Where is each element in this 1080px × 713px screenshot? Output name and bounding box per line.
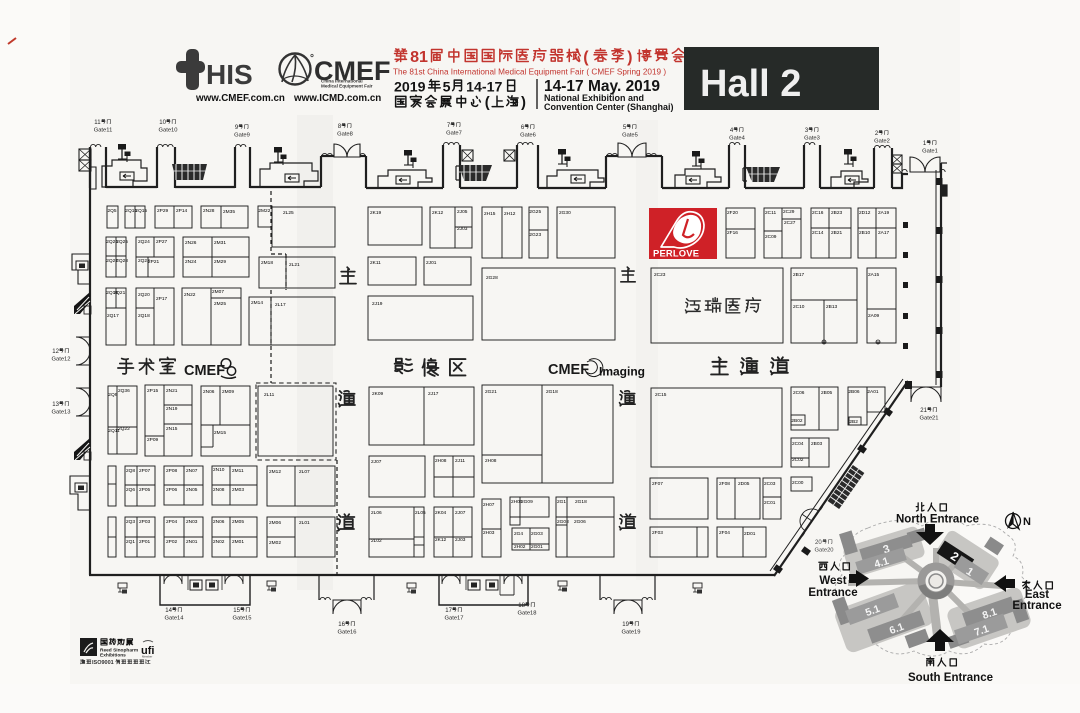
svg-text:2L21: 2L21 <box>289 262 300 268</box>
svg-text:www.CMEF.com.cn: www.CMEF.com.cn <box>195 93 285 104</box>
svg-text:2K09: 2K09 <box>372 391 384 397</box>
svg-text:2P06: 2P06 <box>166 487 178 493</box>
svg-text:2J03: 2J03 <box>455 537 466 543</box>
svg-text:2M29: 2M29 <box>214 259 226 265</box>
svg-text:Gate15: Gate15 <box>232 616 251 622</box>
svg-text:2N15: 2N15 <box>166 426 178 432</box>
svg-text:Entrance: Entrance <box>808 587 857 599</box>
svg-text:2D01: 2D01 <box>744 531 756 537</box>
svg-text:Gate10: Gate10 <box>158 128 177 134</box>
svg-text:2Q3: 2Q3 <box>126 519 135 525</box>
svg-text:(: ( <box>583 48 589 66</box>
svg-text:2C06: 2C06 <box>793 390 805 396</box>
svg-text:14-17: 14-17 <box>466 79 502 95</box>
svg-text:2P09: 2P09 <box>147 437 159 443</box>
svg-text:5: 5 <box>443 79 451 95</box>
svg-text:2G25: 2G25 <box>529 209 541 215</box>
svg-text:14: 14 <box>165 608 172 614</box>
svg-text:2G23: 2G23 <box>529 232 541 238</box>
svg-text:2G1: 2G1 <box>557 499 566 505</box>
svg-text:2N19: 2N19 <box>166 406 178 412</box>
svg-text:Gate17: Gate17 <box>444 616 463 622</box>
svg-text:2P14: 2P14 <box>176 208 188 214</box>
svg-text:12: 12 <box>52 349 59 355</box>
svg-text:2L17: 2L17 <box>275 302 286 308</box>
svg-text:2N07: 2N07 <box>186 468 198 474</box>
svg-text:2P07: 2P07 <box>139 468 151 474</box>
svg-text:2F16: 2F16 <box>727 230 738 236</box>
svg-text:2P08: 2P08 <box>166 468 178 474</box>
svg-text:2N01: 2N01 <box>186 539 198 545</box>
svg-text:2N05: 2N05 <box>186 487 198 493</box>
svg-text:2L05: 2L05 <box>415 510 426 516</box>
svg-text:2B03: 2B03 <box>811 441 823 447</box>
svg-text:2M31: 2M31 <box>214 240 226 246</box>
svg-text:2K04: 2K04 <box>435 510 447 516</box>
svg-text:2B05: 2B05 <box>821 390 833 396</box>
svg-text:2J11: 2J11 <box>455 458 465 464</box>
svg-text:2G09: 2G09 <box>521 499 533 505</box>
svg-text:Gate16: Gate16 <box>337 630 356 636</box>
svg-text:2G18: 2G18 <box>575 499 587 505</box>
svg-text:2B10: 2B10 <box>859 230 871 236</box>
svg-text:2Q24: 2Q24 <box>138 239 150 245</box>
svg-text:2D12: 2D12 <box>859 210 871 216</box>
svg-text:ISO9001: ISO9001 <box>92 660 114 666</box>
svg-text:2J07: 2J07 <box>455 510 466 516</box>
svg-text:2J05: 2J05 <box>457 209 468 215</box>
svg-text:2G03: 2G03 <box>531 531 543 537</box>
svg-text:2N06: 2N06 <box>213 519 225 525</box>
svg-text:2M35: 2M35 <box>223 209 235 215</box>
svg-text:2M14: 2M14 <box>251 300 263 306</box>
svg-text:2Q15: 2Q15 <box>135 208 147 214</box>
svg-text:2G28: 2G28 <box>486 275 498 281</box>
svg-text:2P02: 2P02 <box>166 539 178 545</box>
svg-text:2C01: 2C01 <box>764 500 776 506</box>
svg-text:2M01: 2M01 <box>232 539 244 545</box>
svg-text:2P05: 2P05 <box>139 487 151 493</box>
svg-text:2H02: 2H02 <box>514 544 526 550</box>
svg-text:(: ( <box>485 95 490 111</box>
svg-text:2B02: 2B02 <box>791 418 803 424</box>
svg-text:2M02: 2M02 <box>269 540 281 546</box>
svg-text:2L07: 2L07 <box>299 469 310 475</box>
svg-text:2M07: 2M07 <box>212 289 224 295</box>
svg-text:CMEF: CMEF <box>184 363 225 379</box>
svg-text:2N03: 2N03 <box>186 519 198 525</box>
svg-text:2L06: 2L06 <box>371 510 382 516</box>
svg-text:2Q25: 2Q25 <box>116 239 128 245</box>
svg-text:2C15: 2C15 <box>655 392 667 398</box>
svg-text:2C11: 2C11 <box>765 210 776 216</box>
svg-text:The 81st China International M: The 81st China International Medical Equ… <box>393 68 666 77</box>
svg-text:Gate21: Gate21 <box>919 416 938 422</box>
svg-text:2H12: 2H12 <box>504 211 516 217</box>
svg-text:2Q18: 2Q18 <box>138 313 150 319</box>
svg-text:2Q9: 2Q9 <box>108 392 117 398</box>
svg-text:2Q28: 2Q28 <box>116 258 128 264</box>
svg-text:2Q5: 2Q5 <box>108 208 117 214</box>
svg-text:2Q17: 2Q17 <box>107 313 119 319</box>
svg-text:): ) <box>627 48 632 66</box>
svg-text:2J19: 2J19 <box>372 301 383 307</box>
svg-text:Gate5: Gate5 <box>622 133 638 139</box>
svg-text:2M06: 2M06 <box>269 520 281 526</box>
svg-text:2P04: 2P04 <box>166 519 178 525</box>
svg-text:18: 18 <box>518 603 525 609</box>
svg-text:2N08: 2N08 <box>213 487 225 493</box>
svg-text:2B2: 2B2 <box>849 419 858 425</box>
svg-text:2P01: 2P01 <box>139 539 151 545</box>
svg-text:2P29: 2P29 <box>157 208 169 214</box>
svg-text:Gate2: Gate2 <box>874 139 890 145</box>
svg-text:2C10: 2C10 <box>793 304 805 310</box>
svg-text:2L25: 2L25 <box>283 210 294 216</box>
svg-text:2H15: 2H15 <box>484 211 496 217</box>
svg-text:13: 13 <box>52 402 59 408</box>
svg-text:Gate1: Gate1 <box>922 149 938 155</box>
svg-text:Gate6: Gate6 <box>520 133 536 139</box>
svg-text:Member: Member <box>142 655 152 659</box>
svg-text:2A01: 2A01 <box>867 389 879 395</box>
svg-text:81: 81 <box>410 48 428 66</box>
svg-text:20: 20 <box>815 540 822 546</box>
svg-text:2019: 2019 <box>394 79 426 95</box>
svg-text:Medical Equipment Fair: Medical Equipment Fair <box>321 84 373 89</box>
svg-text:2N02: 2N02 <box>213 539 225 545</box>
svg-text:2M15: 2M15 <box>214 430 226 436</box>
svg-text:Gate19: Gate19 <box>621 630 640 636</box>
svg-text:2H03: 2H03 <box>483 530 495 536</box>
svg-text:North Entrance: North Entrance <box>896 514 979 526</box>
svg-text:2N22: 2N22 <box>184 292 196 298</box>
svg-text:Gate14: Gate14 <box>164 616 184 622</box>
svg-text:Imaging: Imaging <box>599 365 645 379</box>
svg-text:17: 17 <box>445 608 452 614</box>
svg-text:2M09: 2M09 <box>222 389 234 395</box>
svg-text:N: N <box>1023 516 1031 528</box>
svg-text:2M03: 2M03 <box>232 487 244 493</box>
svg-text:2F07: 2F07 <box>652 481 663 487</box>
svg-text:2A09: 2A09 <box>868 313 880 319</box>
svg-text:2K19: 2K19 <box>370 210 382 216</box>
svg-text:2J07: 2J07 <box>371 459 382 465</box>
svg-text:2C03: 2C03 <box>764 481 776 487</box>
svg-text:2C29: 2C29 <box>783 209 795 215</box>
svg-text:Entrance: Entrance <box>1012 600 1061 612</box>
svg-text:2G06: 2G06 <box>574 519 586 525</box>
svg-text:2K12: 2K12 <box>435 537 447 543</box>
svg-text:2F20: 2F20 <box>727 210 738 216</box>
svg-text:2Q20: 2Q20 <box>138 292 150 298</box>
svg-text:2M22: 2M22 <box>258 208 270 214</box>
svg-text:2D05: 2D05 <box>738 481 750 487</box>
svg-text:2M05: 2M05 <box>232 519 244 525</box>
svg-text:2C00: 2C00 <box>792 480 804 486</box>
svg-text:Gate7: Gate7 <box>446 131 462 137</box>
svg-text:2M12: 2M12 <box>269 469 281 475</box>
svg-text:16: 16 <box>338 622 345 628</box>
svg-text:2N21: 2N21 <box>166 388 178 394</box>
svg-text:2N24: 2N24 <box>185 259 197 265</box>
svg-text:2P17: 2P17 <box>156 296 168 302</box>
svg-text:www.ICMD.com.cn: www.ICMD.com.cn <box>293 93 381 104</box>
svg-text:2P27: 2P27 <box>156 239 168 245</box>
svg-text:Gate13: Gate13 <box>51 410 70 416</box>
svg-text:2L11: 2L11 <box>264 392 275 398</box>
svg-text:CMEF: CMEF <box>548 362 589 378</box>
svg-text:21: 21 <box>920 408 927 414</box>
svg-text:2G01: 2G01 <box>531 544 543 550</box>
svg-text:Gate8: Gate8 <box>337 132 353 138</box>
svg-text:15: 15 <box>233 608 240 614</box>
svg-text:10: 10 <box>159 120 166 126</box>
svg-text:2J01: 2J01 <box>426 260 437 266</box>
svg-text:Gate4: Gate4 <box>729 136 746 142</box>
svg-text:2Q8: 2Q8 <box>126 468 135 474</box>
svg-text:2P15: 2P15 <box>147 388 159 394</box>
svg-text:2H08: 2H08 <box>485 458 497 464</box>
svg-text:2F08: 2F08 <box>719 481 730 487</box>
svg-text:2B06: 2B06 <box>848 389 860 395</box>
svg-text:2M18: 2M18 <box>261 260 273 266</box>
svg-text:2G4: 2G4 <box>514 531 523 537</box>
svg-text:2L01: 2L01 <box>299 520 310 526</box>
svg-text:2C14: 2C14 <box>812 230 824 236</box>
svg-text:2P03: 2P03 <box>139 519 151 525</box>
svg-text:2Q1: 2Q1 <box>126 539 135 545</box>
svg-text:2C27: 2C27 <box>784 220 796 226</box>
svg-text:Gate9: Gate9 <box>234 133 250 139</box>
svg-text:2K11: 2K11 <box>370 260 381 266</box>
svg-text:2N10: 2N10 <box>213 467 225 473</box>
svg-text:HIS: HIS <box>206 59 253 90</box>
svg-text:2A19: 2A19 <box>878 210 890 216</box>
svg-text:2B21: 2B21 <box>831 230 843 236</box>
svg-text:2F04: 2F04 <box>719 530 730 536</box>
svg-text:2F03: 2F03 <box>652 530 663 536</box>
svg-text:Gate3: Gate3 <box>804 136 820 142</box>
svg-text:2C09: 2C09 <box>765 234 777 240</box>
svg-text:Exhibitions: Exhibitions <box>100 653 126 659</box>
svg-text:PERLOVE: PERLOVE <box>653 248 699 259</box>
svg-text:2M11: 2M11 <box>232 468 244 474</box>
svg-text:2G30: 2G30 <box>559 210 571 216</box>
svg-text:2B17: 2B17 <box>793 272 805 278</box>
svg-text:2M25: 2M25 <box>214 301 226 307</box>
svg-text:2A17: 2A17 <box>878 230 890 236</box>
svg-text:2Q36: 2Q36 <box>118 388 130 394</box>
svg-text:2G18: 2G18 <box>546 389 558 395</box>
svg-text:2Q21: 2Q21 <box>114 290 126 296</box>
svg-text:2H07: 2H07 <box>483 502 495 508</box>
svg-text:2N06: 2N06 <box>203 389 215 395</box>
svg-text:2K12: 2K12 <box>432 210 444 216</box>
svg-text:2N28: 2N28 <box>203 208 215 214</box>
svg-text:Gate18: Gate18 <box>517 611 536 617</box>
svg-text:2N26: 2N26 <box>185 240 197 246</box>
svg-text:Gate12: Gate12 <box>51 357 70 363</box>
svg-text:19: 19 <box>622 622 629 628</box>
svg-text:2J17: 2J17 <box>428 391 439 397</box>
svg-text:Gate20: Gate20 <box>814 548 833 554</box>
svg-text:West: West <box>819 575 846 587</box>
svg-text:2H08: 2H08 <box>435 458 447 464</box>
svg-text:2G21: 2G21 <box>485 389 497 395</box>
svg-text:Hall 2: Hall 2 <box>700 63 801 105</box>
svg-text:Gate11: Gate11 <box>94 128 113 134</box>
svg-text:): ) <box>521 95 526 111</box>
svg-text:2P21: 2P21 <box>148 259 160 265</box>
svg-text:2B23: 2B23 <box>831 210 843 216</box>
svg-text:South Entrance: South Entrance <box>908 672 993 684</box>
svg-text:2C23: 2C23 <box>654 272 666 278</box>
svg-text:2C04: 2C04 <box>792 441 804 447</box>
svg-text:Convention Center (Shanghai): Convention Center (Shanghai) <box>544 102 674 112</box>
svg-text:11: 11 <box>94 120 101 126</box>
svg-text:2B13: 2B13 <box>826 304 838 310</box>
svg-text:2Q6: 2Q6 <box>126 487 135 493</box>
svg-text:2A15: 2A15 <box>868 272 880 278</box>
svg-text:2C16: 2C16 <box>812 210 824 216</box>
